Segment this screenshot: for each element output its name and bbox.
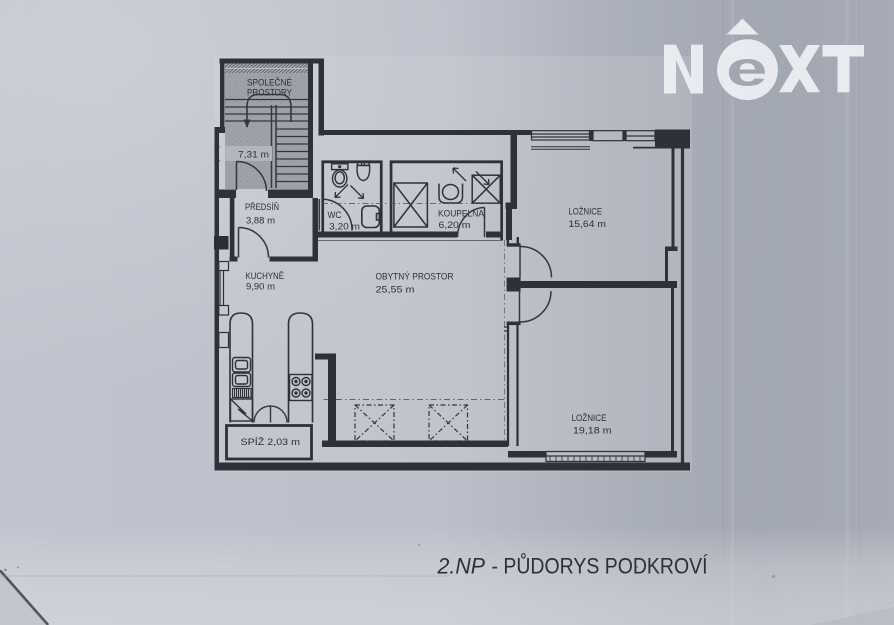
svg-text:2.NP: 2.NP (437, 554, 486, 579)
svg-text:15,64 m: 15,64 m (569, 219, 607, 229)
svg-text:SPÍŽ 2,03 m: SPÍŽ 2,03 m (241, 437, 301, 447)
svg-text:PROSTORY: PROSTORY (247, 88, 292, 98)
svg-text:KOUPELNA: KOUPELNA (438, 209, 484, 219)
svg-text:- PŮDORYS PODKROVÍ: - PŮDORYS PODKROVÍ (492, 554, 709, 579)
svg-text:3,20 m: 3,20 m (329, 222, 360, 232)
svg-text:SPOLEČNÉ: SPOLEČNÉ (247, 78, 292, 88)
svg-text:9,90 m: 9,90 m (246, 282, 275, 292)
svg-text:19,18 m: 19,18 m (573, 426, 612, 436)
svg-text:7,31 m: 7,31 m (238, 150, 269, 160)
svg-text:PŘEDSÍŇ: PŘEDSÍŇ (245, 202, 279, 212)
svg-text:LOŽNICE: LOŽNICE (572, 413, 607, 423)
svg-text:3,88 m: 3,88 m (246, 216, 275, 226)
svg-text:6,20 m: 6,20 m (439, 220, 471, 230)
svg-text:e: e (726, 42, 768, 96)
svg-text:LOŽNICE: LOŽNICE (569, 207, 603, 217)
svg-text:OBYTNÝ PROSTOR: OBYTNÝ PROSTOR (376, 272, 454, 283)
svg-text:WC: WC (328, 210, 342, 220)
svg-text:KUCHYNĚ: KUCHYNĚ (246, 271, 285, 281)
svg-text:25,55 m: 25,55 m (376, 285, 415, 296)
